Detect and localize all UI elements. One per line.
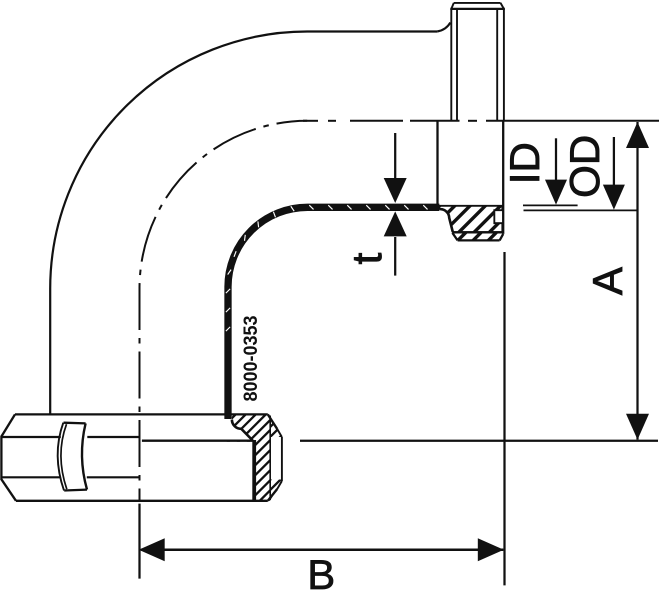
svg-text:t: t <box>343 252 390 264</box>
svg-text:OD: OD <box>561 135 608 198</box>
svg-text:ID: ID <box>501 142 548 184</box>
svg-text:8000-0353: 8000-0353 <box>241 316 262 402</box>
svg-text:A: A <box>584 267 631 295</box>
svg-text:B: B <box>307 551 335 598</box>
